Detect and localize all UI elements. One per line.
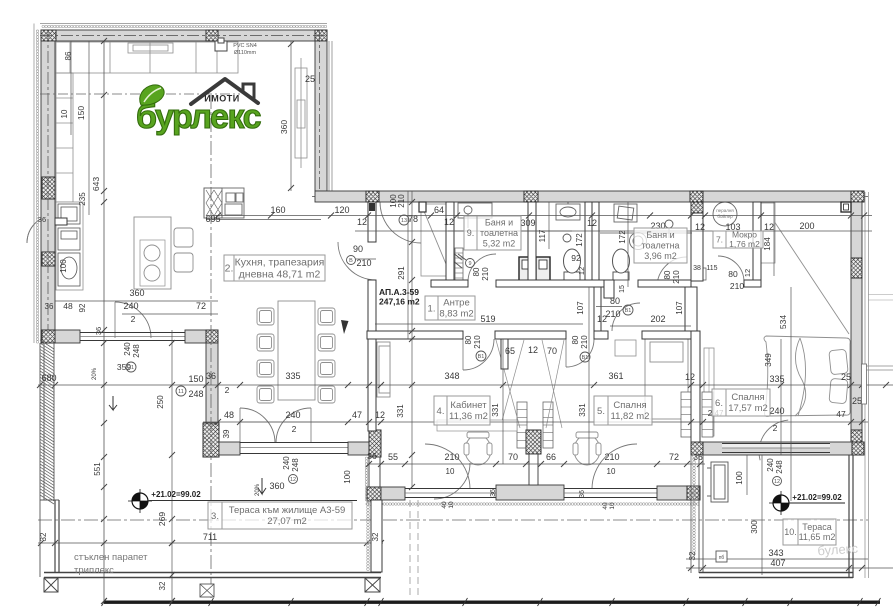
svg-text:210: 210 <box>730 281 744 291</box>
svg-text:20%: 20% <box>92 367 98 380</box>
svg-text:248: 248 <box>291 458 300 472</box>
svg-text:булекс: булекс <box>817 541 859 559</box>
svg-text:172: 172 <box>618 230 627 244</box>
svg-text:150: 150 <box>76 106 86 120</box>
svg-text:бойлер: бойлер <box>717 213 733 219</box>
svg-text:210: 210 <box>672 270 681 284</box>
svg-text:Тераса към жилище А3-59: Тераса към жилище А3-59 <box>229 505 346 516</box>
svg-text:Ø110mm: Ø110mm <box>234 50 257 56</box>
svg-text:248: 248 <box>775 460 784 474</box>
svg-text:стъклен парапет: стъклен парапет <box>74 552 148 563</box>
svg-text:48: 48 <box>63 301 73 311</box>
svg-text:331: 331 <box>491 403 500 417</box>
svg-text:360: 360 <box>129 288 144 298</box>
svg-text:72: 72 <box>196 301 206 311</box>
svg-text:36: 36 <box>490 489 497 497</box>
svg-text:5.: 5. <box>597 406 605 417</box>
svg-text:343: 343 <box>768 548 783 558</box>
svg-text:210: 210 <box>481 267 490 281</box>
svg-text:9: 9 <box>468 261 471 267</box>
svg-text:160: 160 <box>270 205 285 215</box>
svg-text:80: 80 <box>571 335 580 344</box>
svg-text:12: 12 <box>444 217 454 227</box>
svg-text:9.: 9. <box>467 228 475 238</box>
svg-text:11,36 m2: 11,36 m2 <box>449 411 488 422</box>
svg-text:100: 100 <box>343 470 352 484</box>
svg-text:Антре: Антре <box>443 298 470 309</box>
svg-text:B: B <box>349 258 353 264</box>
svg-text:11: 11 <box>178 389 184 395</box>
svg-text:72: 72 <box>669 452 679 462</box>
svg-text:12: 12 <box>290 477 296 483</box>
svg-text:48: 48 <box>224 410 234 420</box>
svg-text:235: 235 <box>78 192 87 206</box>
svg-text:210: 210 <box>397 194 406 208</box>
svg-text:92: 92 <box>78 303 87 312</box>
svg-text:10.: 10. <box>784 527 797 537</box>
svg-text:47: 47 <box>352 410 362 420</box>
svg-text:2: 2 <box>773 423 778 433</box>
svg-text:15: 15 <box>619 285 626 293</box>
svg-text:348: 348 <box>444 371 459 381</box>
svg-text:10: 10 <box>607 467 616 476</box>
svg-text:551: 551 <box>93 462 102 476</box>
svg-text:64: 64 <box>434 205 444 215</box>
svg-text:100: 100 <box>735 471 744 485</box>
svg-text:300: 300 <box>750 520 759 534</box>
svg-text:210: 210 <box>605 309 620 319</box>
svg-text:250: 250 <box>156 395 165 409</box>
svg-text:78: 78 <box>408 214 418 224</box>
svg-text:240: 240 <box>123 301 138 311</box>
svg-text:40: 40 <box>441 501 448 509</box>
svg-text:680: 680 <box>41 373 56 383</box>
svg-text:361: 361 <box>608 371 623 381</box>
svg-text:+21.02=99.02: +21.02=99.02 <box>151 490 201 499</box>
svg-text:80: 80 <box>728 269 738 279</box>
svg-text:12: 12 <box>685 372 695 382</box>
svg-text:32: 32 <box>39 532 48 541</box>
svg-text:66: 66 <box>546 452 556 462</box>
svg-text:120: 120 <box>334 205 349 215</box>
svg-text:4.: 4. <box>437 406 445 417</box>
svg-text:240: 240 <box>123 342 132 356</box>
svg-text:80: 80 <box>472 267 481 276</box>
svg-text:80: 80 <box>663 270 672 279</box>
svg-text:11,82 m2: 11,82 m2 <box>611 411 650 422</box>
svg-text:12: 12 <box>764 222 774 232</box>
svg-text:3,96 m2: 3,96 m2 <box>644 251 677 261</box>
svg-text:12: 12 <box>357 217 367 227</box>
svg-text:25: 25 <box>305 74 315 84</box>
svg-text:3.: 3. <box>211 511 219 522</box>
svg-text:349: 349 <box>764 353 773 367</box>
svg-text:210: 210 <box>356 258 371 268</box>
svg-text:150: 150 <box>188 374 203 384</box>
svg-text:25: 25 <box>852 396 862 406</box>
svg-text:АП.А.3-59: АП.А.3-59 <box>379 287 419 297</box>
svg-text:36: 36 <box>94 327 103 335</box>
svg-text:55: 55 <box>388 452 398 462</box>
svg-text:10: 10 <box>60 109 69 118</box>
svg-text:Тераса: Тераса <box>802 522 832 532</box>
svg-text:Баня и: Баня и <box>646 230 674 240</box>
svg-text:291: 291 <box>397 266 406 280</box>
svg-text:210: 210 <box>473 335 482 349</box>
svg-text:10: 10 <box>609 502 616 510</box>
svg-text:12: 12 <box>577 267 586 275</box>
svg-text:172: 172 <box>575 233 584 247</box>
svg-text:70: 70 <box>508 452 518 462</box>
svg-text:12: 12 <box>587 218 597 228</box>
svg-text:240: 240 <box>769 406 784 416</box>
svg-text:86: 86 <box>64 51 73 60</box>
svg-text:12: 12 <box>774 479 780 485</box>
svg-text:2: 2 <box>292 424 297 434</box>
svg-text:331: 331 <box>396 404 405 418</box>
svg-text:247,16 m2: 247,16 m2 <box>379 297 420 307</box>
svg-text:115: 115 <box>706 265 717 272</box>
svg-text:Спалня: Спалня <box>613 400 646 411</box>
svg-text:38: 38 <box>693 265 701 272</box>
svg-text:643: 643 <box>91 177 101 191</box>
svg-text:107: 107 <box>675 301 684 315</box>
svg-text:20%: 20% <box>255 483 261 496</box>
svg-text:80: 80 <box>610 296 620 306</box>
svg-text:331: 331 <box>578 403 587 417</box>
svg-text:36: 36 <box>45 302 54 311</box>
svg-text:70: 70 <box>547 346 557 356</box>
svg-text:202: 202 <box>650 314 665 324</box>
svg-text:1.: 1. <box>428 303 436 314</box>
svg-text:711: 711 <box>203 532 217 542</box>
svg-text:6.: 6. <box>715 398 723 409</box>
svg-text:25: 25 <box>841 372 851 382</box>
svg-text:7.: 7. <box>716 234 723 244</box>
svg-text:40: 40 <box>602 502 609 510</box>
svg-text:1,76 m2: 1,76 m2 <box>729 239 760 249</box>
svg-text:36: 36 <box>206 371 216 381</box>
svg-text:21: 21 <box>128 365 134 371</box>
svg-text:27,07 m2: 27,07 m2 <box>267 516 307 527</box>
svg-text:200: 200 <box>799 221 814 231</box>
svg-text:519: 519 <box>480 314 495 324</box>
svg-text:11,65 m2: 11,65 m2 <box>799 532 836 542</box>
svg-text:36: 36 <box>367 451 377 461</box>
svg-text:2.: 2. <box>225 263 234 275</box>
svg-text:335: 335 <box>769 374 784 384</box>
svg-text:100: 100 <box>59 259 68 273</box>
svg-text:10: 10 <box>448 501 455 509</box>
svg-text:12: 12 <box>375 410 385 420</box>
svg-text:+21.02=99.02: +21.02=99.02 <box>792 493 842 502</box>
svg-text:B1: B1 <box>478 354 485 360</box>
svg-text:360: 360 <box>279 120 289 134</box>
svg-text:80: 80 <box>464 335 473 344</box>
svg-text:309: 309 <box>520 218 535 228</box>
svg-text:36: 36 <box>38 215 46 224</box>
svg-text:10: 10 <box>446 467 455 476</box>
svg-text:тоалетна: тоалетна <box>641 240 679 250</box>
svg-text:2: 2 <box>225 385 230 395</box>
svg-text:117: 117 <box>538 229 547 242</box>
svg-text:90: 90 <box>353 244 363 254</box>
svg-text:210: 210 <box>604 452 619 462</box>
svg-text:Спалня: Спалня <box>731 392 764 403</box>
svg-text:407: 407 <box>770 558 785 568</box>
svg-text:240: 240 <box>282 456 291 470</box>
svg-text:Баня и: Баня и <box>485 218 513 228</box>
svg-text:240: 240 <box>285 410 300 420</box>
svg-text:92: 92 <box>571 253 581 263</box>
svg-text:пб: пб <box>719 555 725 561</box>
svg-text:210: 210 <box>580 335 589 349</box>
svg-text:17,57 m2: 17,57 m2 <box>728 403 768 414</box>
svg-text:32: 32 <box>688 551 697 560</box>
svg-text:5,32 m2: 5,32 m2 <box>483 238 516 248</box>
svg-text:бурлекс: бурлекс <box>136 98 261 136</box>
svg-text:B1: B1 <box>625 308 632 314</box>
svg-text:пералня: пералня <box>716 208 734 213</box>
svg-text:269: 269 <box>157 512 167 526</box>
svg-text:тоалетна: тоалетна <box>480 228 518 238</box>
svg-text:248: 248 <box>132 344 141 358</box>
svg-text:534: 534 <box>778 315 788 329</box>
svg-text:65: 65 <box>505 346 515 356</box>
svg-text:2: 2 <box>131 314 136 324</box>
svg-text:695: 695 <box>205 214 220 224</box>
svg-text:12: 12 <box>528 345 538 355</box>
svg-text:36: 36 <box>693 452 703 462</box>
svg-text:PVC SN4: PVC SN4 <box>233 43 257 49</box>
svg-text:107: 107 <box>576 301 585 315</box>
svg-text:184: 184 <box>763 237 772 251</box>
svg-text:Кабинет: Кабинет <box>450 400 487 411</box>
svg-text:47: 47 <box>836 409 846 419</box>
svg-text:32: 32 <box>371 532 380 541</box>
svg-text:248: 248 <box>188 389 203 399</box>
svg-text:Кухня, трапезария: Кухня, трапезария <box>235 256 325 268</box>
svg-text:240: 240 <box>766 458 775 472</box>
svg-text:36: 36 <box>579 490 586 498</box>
svg-text:13: 13 <box>401 218 407 224</box>
svg-text:Мокро: Мокро <box>732 229 757 239</box>
svg-text:дневна 48,71 m2: дневна 48,71 m2 <box>239 268 321 280</box>
svg-text:210: 210 <box>444 452 459 462</box>
svg-text:360: 360 <box>269 481 284 491</box>
svg-text:триплекс: триплекс <box>74 565 114 576</box>
svg-text:8,83 m2: 8,83 m2 <box>439 309 473 320</box>
svg-text:32: 32 <box>158 581 167 590</box>
svg-text:12: 12 <box>743 269 752 277</box>
svg-text:B1: B1 <box>582 355 589 361</box>
svg-text:335: 335 <box>285 371 300 381</box>
svg-text:12: 12 <box>695 222 705 232</box>
svg-text:39: 39 <box>222 429 231 438</box>
